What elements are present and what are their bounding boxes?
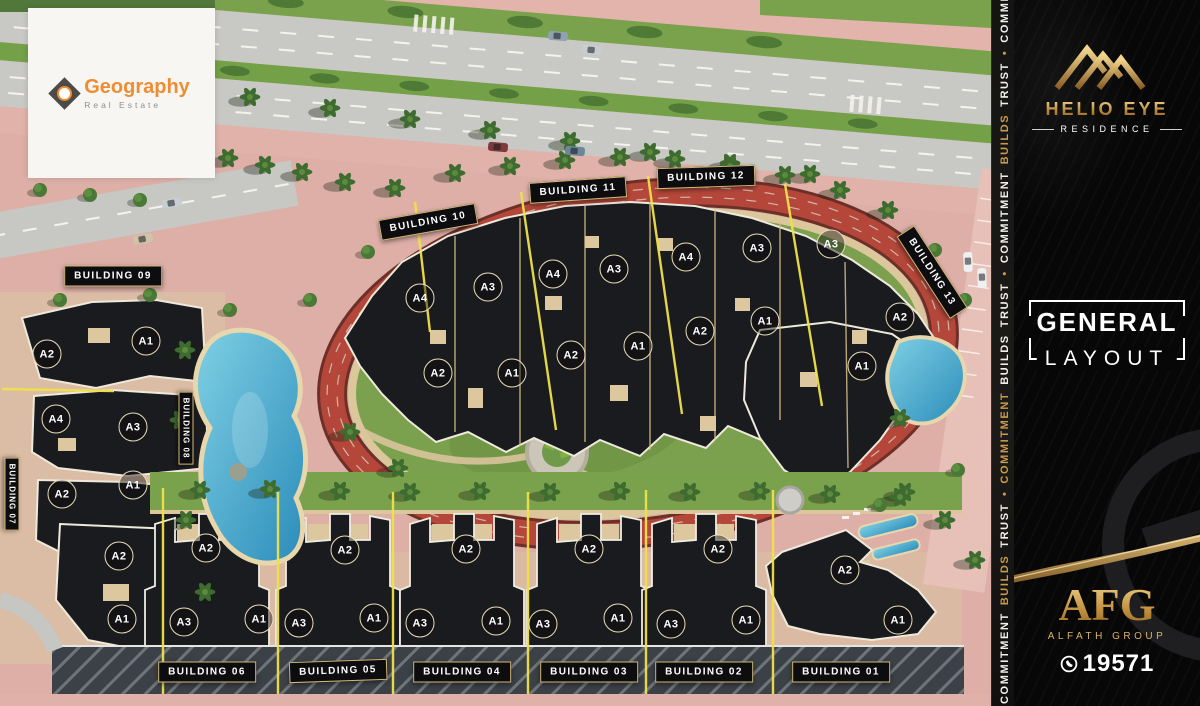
unit-badge-a1: A1 (119, 471, 148, 500)
phone-number: 19571 (1083, 650, 1155, 678)
unit-badge-a2: A2 (557, 341, 586, 370)
unit-badge-a4: A4 (42, 405, 71, 434)
unit-badge-a1: A1 (732, 606, 761, 635)
building-label-01: BUILDING 01 (792, 662, 890, 683)
unit-badge-a2: A2 (192, 534, 221, 563)
ribbon-word: TRUST (999, 283, 1011, 328)
unit-badge-a2: A2 (105, 542, 134, 571)
unit-badge-a1: A1 (604, 604, 633, 633)
unit-badge-a3: A3 (119, 413, 148, 442)
building-label-12: BUILDING 12 (657, 165, 755, 189)
unit-badge-a2: A2 (424, 359, 453, 388)
project-name: HELIO EYE (1014, 99, 1200, 120)
unit-badge-a2: A2 (831, 556, 860, 585)
building-label-07: BUILDING 07 (5, 458, 20, 531)
ribbon-word: COMMITMENT (999, 392, 1011, 484)
unit-badge-a2: A2 (704, 535, 733, 564)
unit-badge-a1: A1 (751, 307, 780, 336)
unit-badge-a1: A1 (132, 327, 161, 356)
hotline: 19571 (1014, 650, 1200, 678)
commitment-ribbon: COMMITMENTBUILDSTRUST•COMMITMENTBUILDSTR… (991, 0, 1015, 706)
general-layout-line1: GENERAL (1031, 307, 1183, 338)
unit-badge-a2: A2 (48, 480, 77, 509)
ribbon-word: COMMITMENT (999, 0, 1011, 43)
general-layout-poster: BUILDING 01BUILDING 02BUILDING 03BUILDIN… (0, 0, 1200, 706)
building-label-06: BUILDING 06 (158, 662, 256, 683)
unit-badge-a2: A2 (686, 317, 715, 346)
unit-badge-a3: A3 (817, 230, 846, 259)
unit-badge-a3: A3 (406, 609, 435, 638)
helio-eye-logo: HELIO EYE RESIDENCE (1014, 38, 1200, 134)
general-layout-title: GENERAL LAYOUT (1029, 300, 1185, 360)
geography-brand: Geography (84, 77, 190, 97)
unit-badge-a2: A2 (452, 535, 481, 564)
ribbon-word: COMMITMENT (999, 612, 1011, 704)
unit-badge-a1: A1 (245, 605, 274, 634)
ribbon-word: COMMITMENT (999, 171, 1011, 263)
dash-right (1160, 129, 1182, 130)
ribbon-word: TRUST (999, 503, 1011, 548)
unit-badge-a2: A2 (886, 303, 915, 332)
project-subtitle: RESIDENCE (1014, 124, 1200, 134)
site-plan: BUILDING 01BUILDING 02BUILDING 03BUILDIN… (0, 0, 991, 706)
geography-watermark-card: Geography Real Estate (28, 8, 215, 178)
unit-badge-a3: A3 (285, 609, 314, 638)
unit-badge-a4: A4 (539, 260, 568, 289)
unit-badge-a1: A1 (624, 332, 653, 361)
unit-badge-a3: A3 (529, 610, 558, 639)
afg-logo: AFG (1014, 582, 1200, 628)
dash-left (1032, 129, 1054, 130)
ribbon-bullet: • (999, 50, 1011, 55)
mountains-icon (1051, 38, 1163, 90)
building-label-02: BUILDING 02 (655, 662, 753, 683)
unit-badge-a2: A2 (575, 535, 604, 564)
unit-badge-a1: A1 (482, 607, 511, 636)
unit-badge-a1: A1 (360, 604, 389, 633)
building-label-08: BUILDING 08 (179, 392, 194, 465)
unit-badge-a2: A2 (33, 340, 62, 369)
ribbon-word: BUILDS (999, 114, 1011, 165)
building-label-04: BUILDING 04 (413, 662, 511, 683)
building-label-10: BUILDING 10 (378, 203, 478, 241)
developer-block: AFG ALFATH GROUP 19571 (1014, 582, 1200, 678)
building-label-03: BUILDING 03 (540, 662, 638, 683)
ribbon-bullet: • (999, 270, 1011, 275)
building-label-11: BUILDING 11 (529, 176, 627, 204)
geography-logo-icon (48, 77, 81, 110)
ribbon-word: BUILDS (999, 334, 1011, 385)
unit-badge-a1: A1 (848, 352, 877, 381)
general-layout-line2: LAYOUT (1037, 347, 1177, 371)
building-label-09: BUILDING 09 (64, 266, 162, 287)
developer-name: ALFATH GROUP (1014, 631, 1200, 642)
unit-badge-a3: A3 (474, 273, 503, 302)
commitment-ribbon-text: COMMITMENTBUILDSTRUST•COMMITMENTBUILDSTR… (996, 0, 1015, 704)
building-label-05: BUILDING 05 (289, 659, 387, 683)
unit-badge-a1: A1 (884, 606, 913, 635)
phone-icon (1060, 655, 1078, 673)
unit-badge-a3: A3 (600, 255, 629, 284)
unit-badge-a3: A3 (170, 608, 199, 637)
info-sidebar: HELIO EYE RESIDENCE GENERAL LAYOUT AFG A… (1014, 0, 1200, 706)
unit-badge-a4: A4 (406, 284, 435, 313)
unit-badge-a3: A3 (657, 610, 686, 639)
ribbon-word: BUILDS (999, 555, 1011, 606)
ribbon-bullet: • (999, 491, 1011, 496)
unit-badge-a3: A3 (743, 234, 772, 263)
geography-tagline: Real Estate (84, 100, 190, 110)
unit-badge-a1: A1 (108, 605, 137, 634)
ribbon-word: TRUST (999, 62, 1011, 107)
unit-badge-a4: A4 (672, 243, 701, 272)
unit-badge-a1: A1 (498, 359, 527, 388)
unit-badge-a2: A2 (331, 536, 360, 565)
